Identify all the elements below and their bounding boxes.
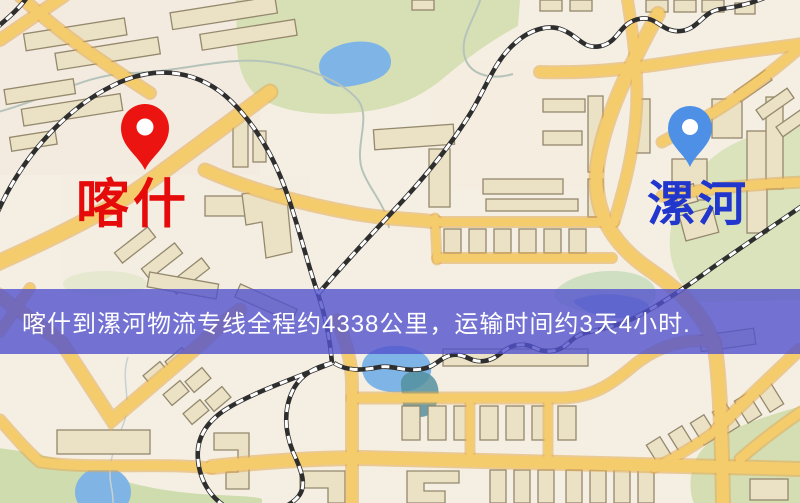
origin-label: 喀什 <box>76 175 190 234</box>
map-canvas: 喀什 漯河 <box>0 0 800 503</box>
destination-label: 漯河 <box>647 178 749 231</box>
destination-pin-hole <box>682 119 698 135</box>
map-view: 喀什 漯河 喀什到漯河物流专线全程约4338公里，运输时间约3天4小时. <box>0 0 800 503</box>
destination-pin-icon <box>668 106 712 167</box>
origin-pin-hole <box>137 119 154 136</box>
route-info-text: 喀什到漯河物流专线全程约4338公里，运输时间约3天4小时. <box>22 304 691 339</box>
route-info-banner: 喀什到漯河物流专线全程约4338公里，运输时间约3天4小时. <box>0 289 800 354</box>
